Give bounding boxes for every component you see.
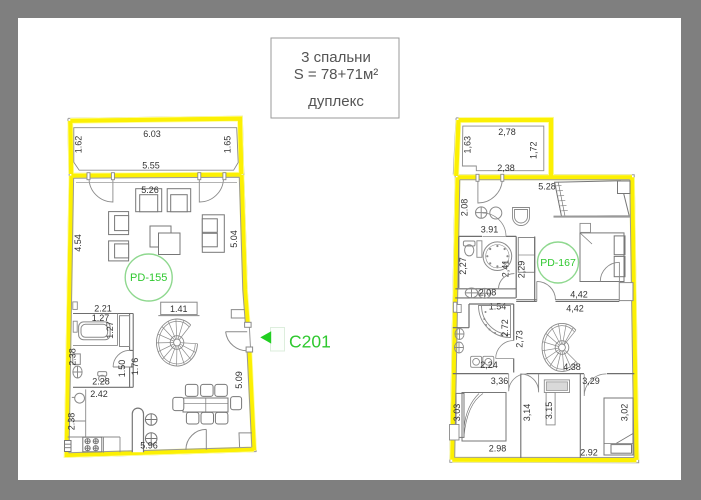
svg-text:4,42: 4,42 <box>570 290 588 300</box>
svg-text:5.96: 5.96 <box>140 440 158 450</box>
svg-text:2.72: 2.72 <box>500 319 510 337</box>
svg-text:3.91: 3.91 <box>481 225 499 235</box>
svg-text:3,02: 3,02 <box>619 404 629 422</box>
svg-text:2.08: 2.08 <box>459 199 469 217</box>
svg-text:4.54: 4.54 <box>73 234 83 252</box>
svg-text:2.98: 2.98 <box>489 443 507 453</box>
svg-text:2.92: 2.92 <box>580 447 598 457</box>
svg-text:2,08: 2,08 <box>479 288 497 298</box>
svg-text:1.62: 1.62 <box>74 136 84 154</box>
svg-text:2.28: 2.28 <box>92 377 110 387</box>
svg-text:3,29: 3,29 <box>582 376 600 386</box>
svg-text:1.54: 1.54 <box>489 302 507 312</box>
svg-text:1,63: 1,63 <box>463 136 473 154</box>
svg-text:PD-155: PD-155 <box>130 272 167 284</box>
svg-text:3,14: 3,14 <box>522 404 532 422</box>
svg-text:6.03: 6.03 <box>143 129 161 139</box>
svg-text:1.50: 1.50 <box>117 360 127 378</box>
svg-text:3.03: 3.03 <box>452 404 462 422</box>
svg-text:3,36: 3,36 <box>491 376 509 386</box>
svg-text:2,24: 2,24 <box>480 360 498 370</box>
svg-text:5.28: 5.28 <box>538 182 556 192</box>
svg-text:2,38: 2,38 <box>497 163 515 173</box>
svg-text:3.15: 3.15 <box>544 402 554 420</box>
svg-text:5.04: 5.04 <box>229 230 239 248</box>
svg-text:2,73: 2,73 <box>515 330 525 348</box>
svg-text:2.38: 2.38 <box>67 413 77 431</box>
svg-text:1.76: 1.76 <box>130 358 140 376</box>
svg-text:PD-167: PD-167 <box>540 257 576 269</box>
svg-text:2,78: 2,78 <box>498 127 516 137</box>
svg-text:1.41: 1.41 <box>170 304 188 314</box>
svg-text:2,27: 2,27 <box>458 257 468 275</box>
svg-text:1,72: 1,72 <box>529 141 539 159</box>
svg-text:дуплекс: дуплекс <box>308 93 364 110</box>
svg-text:1.27: 1.27 <box>105 321 115 339</box>
svg-text:5.26: 5.26 <box>141 185 159 195</box>
svg-text:2,29: 2,29 <box>516 261 526 279</box>
svg-text:2.38: 2.38 <box>68 348 78 366</box>
svg-text:2.21: 2.21 <box>94 303 112 313</box>
svg-text:C201: C201 <box>289 332 331 352</box>
svg-text:1.65: 1.65 <box>223 136 233 154</box>
svg-text:S = 78+71м²: S = 78+71м² <box>294 66 379 83</box>
svg-text:5.09: 5.09 <box>234 371 244 389</box>
svg-text:3 спальни: 3 спальни <box>301 49 371 66</box>
svg-text:5.55: 5.55 <box>142 161 160 171</box>
svg-text:4.38: 4.38 <box>563 362 581 372</box>
svg-text:4,42: 4,42 <box>566 304 584 314</box>
svg-text:2.42: 2.42 <box>90 389 108 399</box>
